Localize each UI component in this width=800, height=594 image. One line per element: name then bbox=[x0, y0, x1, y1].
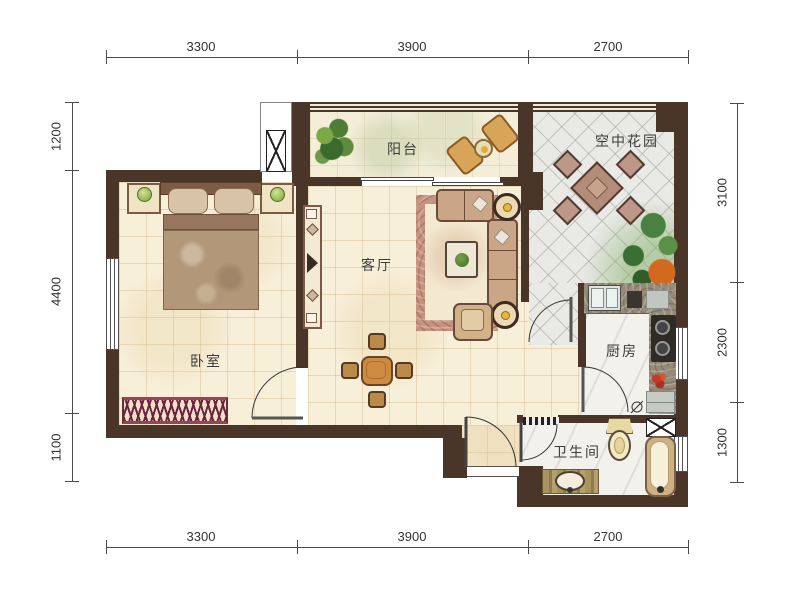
floor-plan: 阳台 空中花园 客厅 卧室 厨房 卫生间 3300 3900 2700 3300… bbox=[0, 0, 800, 594]
dim-left-3: 1100 bbox=[49, 416, 64, 480]
dim-tick bbox=[730, 282, 744, 283]
room-label-bathroom: 卫生间 bbox=[545, 442, 609, 462]
dim-tick bbox=[297, 50, 298, 64]
floor-drain-slash bbox=[631, 401, 643, 413]
dim-tick bbox=[730, 402, 744, 403]
dim-top-1: 3300 bbox=[169, 39, 233, 54]
dim-right-2: 2300 bbox=[715, 311, 730, 375]
dim-top-2: 3900 bbox=[380, 39, 444, 54]
room-label-balcony: 阳台 bbox=[375, 139, 431, 159]
dim-tick bbox=[65, 481, 79, 482]
dimension-line-right bbox=[737, 103, 738, 482]
room-label-kitchen: 厨房 bbox=[594, 341, 650, 361]
dim-tick bbox=[65, 102, 79, 103]
dim-tick bbox=[106, 540, 107, 554]
door-swings-overlay bbox=[0, 0, 800, 594]
dim-tick bbox=[106, 50, 107, 64]
dim-tick bbox=[528, 50, 529, 64]
dim-tick bbox=[730, 103, 744, 104]
dim-right-1: 3100 bbox=[715, 161, 730, 225]
dimension-line-top bbox=[106, 57, 688, 58]
dim-tick bbox=[65, 170, 79, 171]
dim-tick bbox=[528, 540, 529, 554]
dim-left-2: 4400 bbox=[49, 260, 64, 324]
dimension-line-left bbox=[72, 102, 73, 481]
kitchen-door-arc bbox=[583, 367, 628, 412]
dim-tick bbox=[688, 540, 689, 554]
dim-left-1: 1200 bbox=[49, 105, 64, 169]
dim-bottom-3: 2700 bbox=[576, 529, 640, 544]
dim-tick bbox=[730, 482, 744, 483]
room-label-living: 客厅 bbox=[349, 255, 405, 275]
garden-door-arc bbox=[529, 300, 571, 342]
dim-tick bbox=[65, 413, 79, 414]
entrance-door-arc bbox=[466, 417, 516, 467]
dim-bottom-2: 3900 bbox=[380, 529, 444, 544]
dim-tick bbox=[297, 540, 298, 554]
room-label-bedroom: 卧室 bbox=[178, 351, 234, 371]
dim-tick bbox=[688, 50, 689, 64]
dimension-line-bottom bbox=[106, 547, 688, 548]
dim-top-3: 2700 bbox=[576, 39, 640, 54]
room-label-garden: 空中花园 bbox=[585, 131, 669, 151]
dim-bottom-1: 3300 bbox=[169, 529, 233, 544]
dim-right-3: 1300 bbox=[715, 411, 730, 475]
bedroom-door-arc bbox=[252, 367, 303, 418]
